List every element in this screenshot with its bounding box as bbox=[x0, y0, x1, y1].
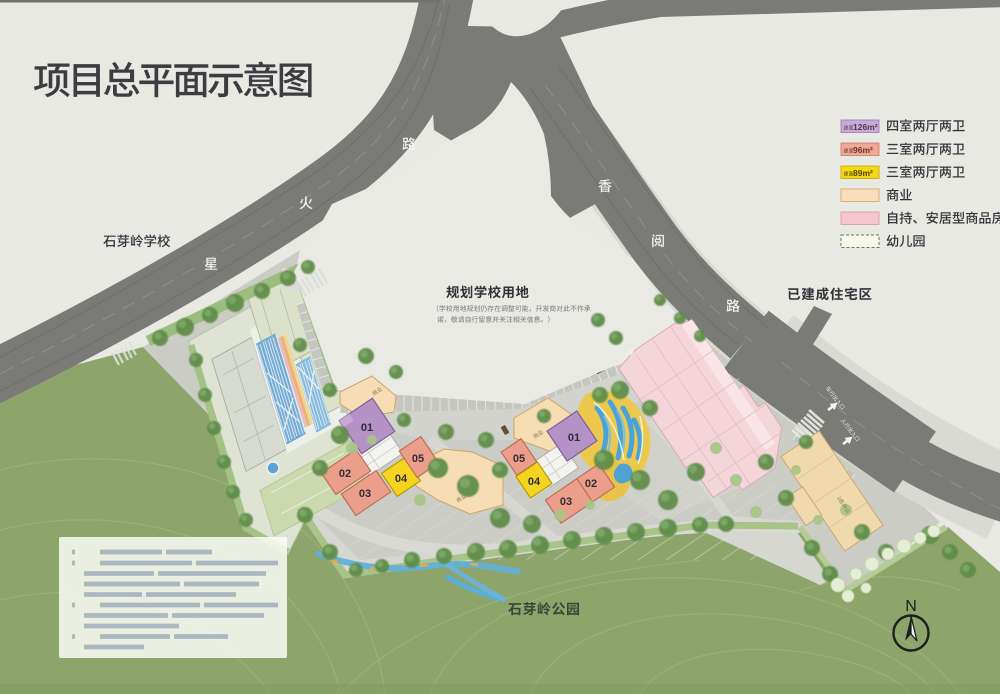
svg-text:89m²: 89m² bbox=[853, 168, 873, 178]
svg-text:01: 01 bbox=[361, 422, 373, 434]
svg-text:04: 04 bbox=[528, 476, 541, 488]
svg-text:04: 04 bbox=[395, 473, 408, 485]
svg-text:01: 01 bbox=[568, 432, 580, 444]
svg-text:02: 02 bbox=[585, 478, 597, 490]
svg-text:03: 03 bbox=[359, 488, 371, 500]
svg-text:02: 02 bbox=[339, 468, 351, 480]
svg-text:05: 05 bbox=[412, 453, 424, 465]
svg-text:96m²: 96m² bbox=[853, 145, 873, 155]
svg-text:N: N bbox=[905, 598, 917, 615]
svg-text:05: 05 bbox=[513, 453, 525, 465]
svg-text:126m²: 126m² bbox=[853, 122, 878, 132]
svg-text:03: 03 bbox=[560, 496, 572, 508]
